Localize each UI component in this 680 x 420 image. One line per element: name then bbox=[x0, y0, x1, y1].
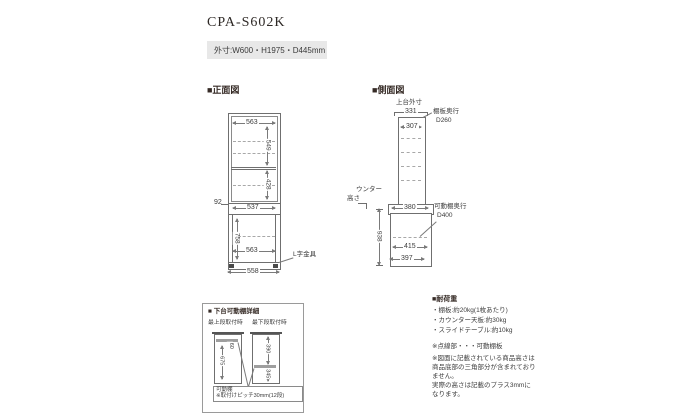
height-note-line-1: ※図面に記載されている商品高さは bbox=[432, 355, 535, 362]
front-dim-upper-height: 549 bbox=[264, 139, 271, 152]
detail-col-right-label: 最下段取付時 bbox=[252, 320, 287, 327]
load-item-slide-table: ・スライドテーブル:約10kg bbox=[432, 327, 513, 334]
side-dim-lower-depth: 415 bbox=[403, 243, 417, 250]
side-counter-height-label-1: ウンター bbox=[356, 186, 382, 193]
spec-sheet: CPA-S602K 外寸:W600・H1975・D445mm ■正面図 563 … bbox=[0, 0, 680, 420]
load-item-shelf: ・棚板:約20kg(1枚あたり) bbox=[432, 307, 508, 314]
front-right-foot bbox=[273, 264, 278, 268]
detail-dim-left-height: 675 bbox=[218, 355, 224, 366]
front-movable-shelf-dashed-2 bbox=[233, 153, 275, 154]
height-note-line-4: 実際の高さは記載のプラス3mmに bbox=[432, 382, 531, 389]
load-item-counter: ・カウンター天板:約30kg bbox=[432, 317, 506, 324]
page-title: CPA-S602K bbox=[207, 15, 286, 31]
detail-dim-left-top: 60 bbox=[227, 342, 233, 350]
side-dim-counter-height: 938 bbox=[375, 230, 382, 243]
side-dim-counter-height-tick-b bbox=[376, 265, 383, 266]
side-dim-upper-outer-tick-l bbox=[394, 112, 395, 116]
front-l-bracket-label: L字金具 bbox=[293, 251, 316, 258]
front-left-foot bbox=[229, 264, 234, 268]
side-dim-upper-outer: 331 bbox=[404, 108, 418, 115]
front-dim-base-width: 558 bbox=[246, 268, 260, 275]
legend-dashed-line: ※点線部・・・可動棚板 bbox=[432, 343, 502, 350]
front-base-line bbox=[228, 262, 279, 263]
front-lower-right-wall bbox=[275, 215, 276, 262]
side-dim-counter-depth: 380 bbox=[403, 204, 417, 211]
front-dim-counter-width: 537 bbox=[246, 204, 260, 211]
side-shelf-depth-value: D260 bbox=[436, 117, 452, 124]
outer-dimensions-box: 外寸:W600・H1975・D445mm bbox=[207, 41, 327, 59]
side-shelf-depth-leader bbox=[423, 112, 432, 118]
detail-title: ■ 下台可動棚詳細 bbox=[208, 308, 259, 315]
detail-dim-right-top: 390 bbox=[264, 343, 270, 354]
side-shelf-dashed-1 bbox=[401, 138, 421, 139]
side-counter-height-bracket-v bbox=[366, 203, 367, 209]
front-dim-top-width: 563 bbox=[245, 119, 259, 126]
side-shelf-dashed-2 bbox=[401, 152, 421, 153]
detail-dim-right-bottom: 345 bbox=[264, 368, 270, 379]
front-dim-lower-height: 758 bbox=[233, 232, 240, 245]
front-dim-lower-width: 563 bbox=[245, 247, 259, 254]
side-dim-counter-height-tick-t bbox=[376, 209, 383, 210]
detail-note-text: ※取付けピッチ30mm(12段) bbox=[216, 393, 284, 399]
side-movable-shelf-value: D400 bbox=[437, 212, 453, 219]
side-counter-height-label-2: 高さ bbox=[347, 195, 360, 202]
side-counter-height-bracket-h bbox=[358, 203, 366, 204]
side-view-title: ■側面図 bbox=[372, 83, 404, 96]
side-dim-base-depth: 397 bbox=[400, 255, 414, 262]
side-dim-upper-inner: 307 bbox=[405, 123, 419, 130]
height-note-line-5: なります。 bbox=[432, 391, 464, 398]
front-fixed-shelf-line-2 bbox=[231, 169, 276, 170]
front-dim-mid-height: 428 bbox=[264, 178, 271, 191]
height-note-line-3: ません。 bbox=[432, 373, 458, 380]
height-note-line-2: 商品底部の三角部分が含まれており bbox=[432, 364, 536, 371]
side-shelf-dashed-4 bbox=[401, 180, 421, 181]
detail-col-left-label: 最上段取付時 bbox=[208, 320, 243, 327]
front-l-bracket-leader bbox=[279, 257, 294, 263]
side-shelf-dashed-3 bbox=[401, 166, 421, 167]
side-upper-outer-label: 上台外寸 bbox=[396, 99, 422, 106]
front-fixed-shelf-line-1 bbox=[231, 167, 276, 168]
side-shelf-depth-label: 棚板奥行 bbox=[433, 108, 459, 115]
front-counter-gap-leader bbox=[221, 204, 228, 205]
load-title: ■耐荷重 bbox=[432, 296, 457, 304]
side-lower-shelf-dashed bbox=[393, 237, 427, 238]
side-movable-shelf-label: 可動棚奥行 bbox=[434, 203, 467, 210]
front-view-title: ■正面図 bbox=[207, 83, 239, 96]
side-upper-profile-outline bbox=[398, 117, 426, 207]
